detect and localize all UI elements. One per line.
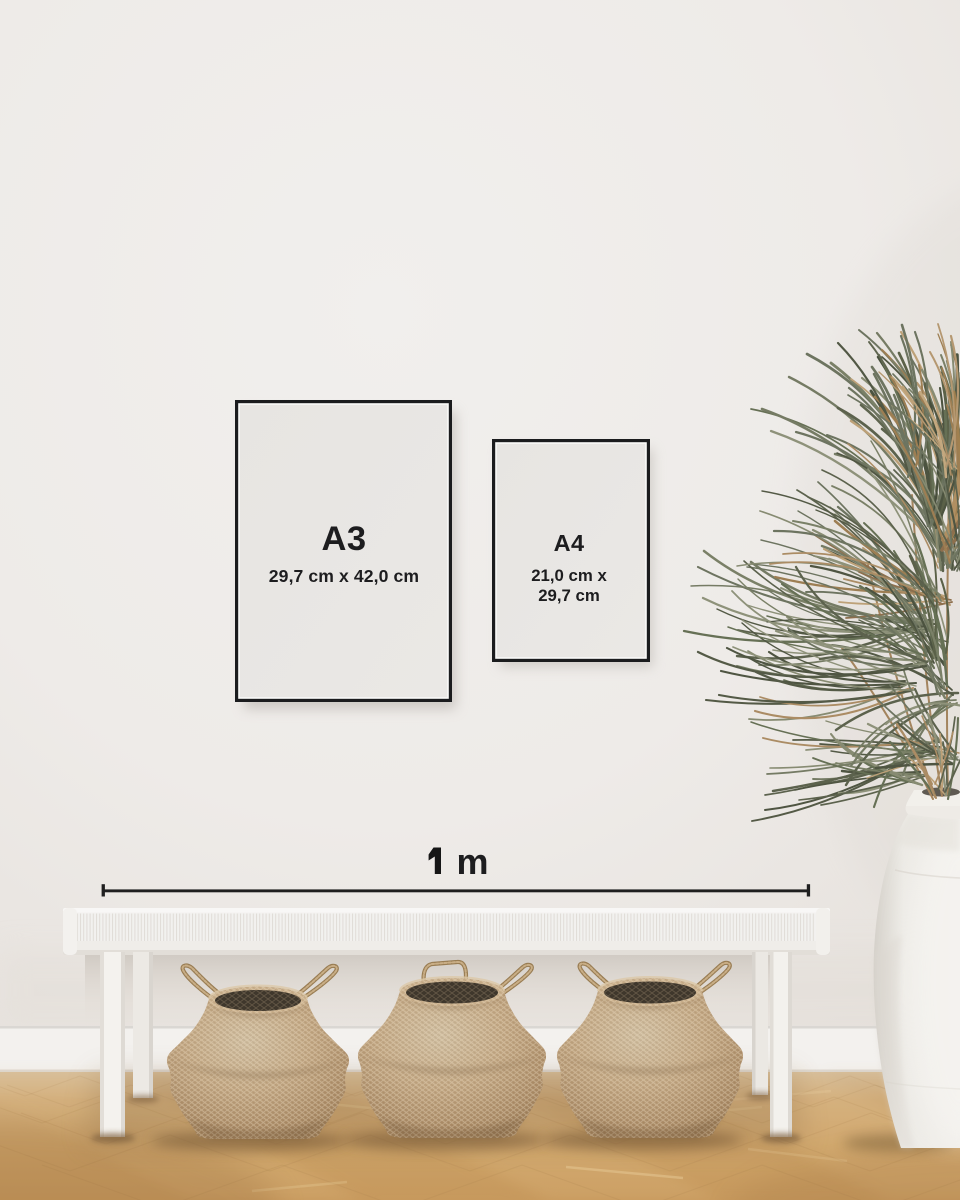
svg-text:21,0 cm x: 21,0 cm x — [531, 566, 607, 585]
svg-text:A3: A3 — [321, 520, 366, 558]
svg-text:A4: A4 — [554, 530, 585, 556]
svg-text:29,7 cm: 29,7 cm — [538, 586, 600, 605]
svg-text:m: m — [456, 841, 488, 882]
svg-text:29,7 cm x 42,0 cm: 29,7 cm x 42,0 cm — [269, 566, 419, 586]
